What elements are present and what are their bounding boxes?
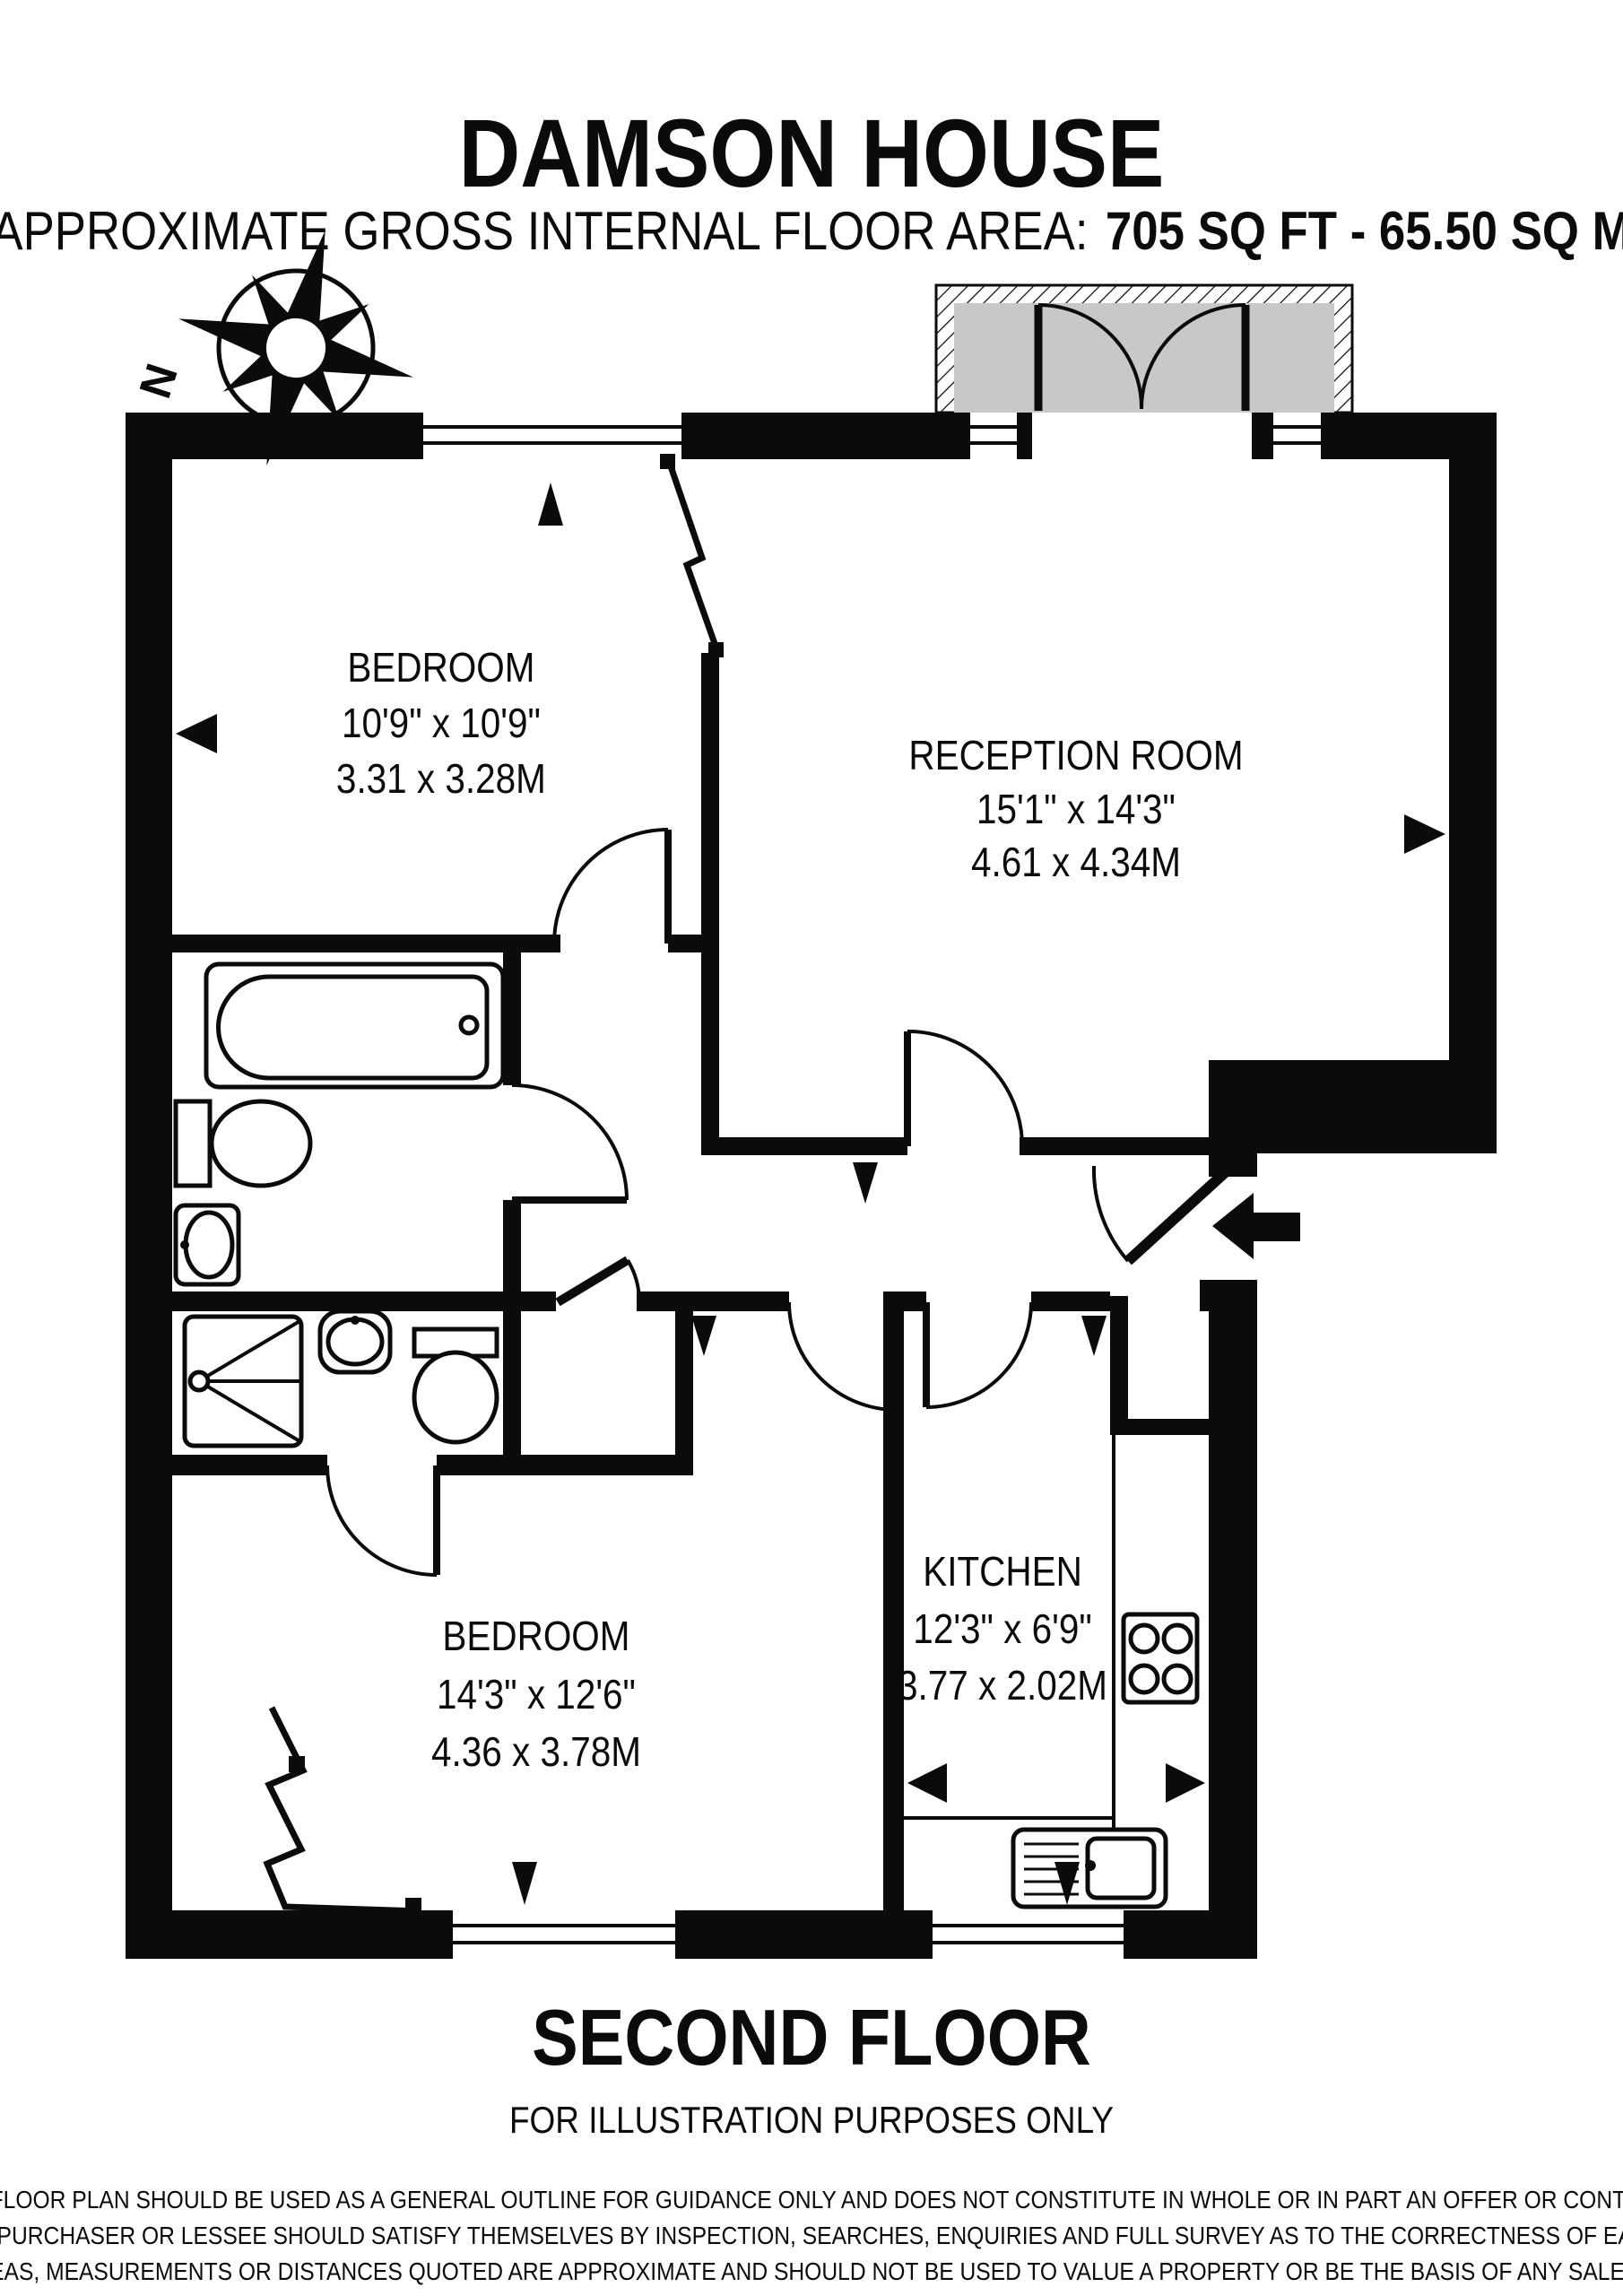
shower-toilet-icon (414, 1329, 497, 1442)
window-balcony-right (1273, 413, 1321, 459)
wall-shower-bottom (126, 1455, 327, 1475)
area-value: 705 SQ FT - 65.50 SQ M (1106, 201, 1623, 261)
window-balcony-left (970, 413, 1017, 459)
floor-label: SECOND FLOOR (532, 1993, 1091, 2082)
hob-icon (1124, 1614, 1197, 1702)
wall-shower-right (503, 1311, 521, 1475)
wall-corridor-d (1031, 1291, 1110, 1311)
shower-basin-icon (320, 1311, 390, 1372)
balcony-deck (954, 303, 1334, 413)
bedroom2-metric: 4.36 x 3.78M (431, 1730, 641, 1776)
window-kitchen-bottom (933, 1910, 1124, 1959)
bedroom1-imperial: 10'9" x 10'9" (342, 701, 541, 747)
disclaimer-line-3: ANY AREAS, MEASUREMENTS OR DISTANCES QUO… (0, 2257, 1623, 2286)
wall-right-upper (1449, 413, 1497, 1062)
toilet-icon (176, 1101, 310, 1186)
reception-name: RECEPTION ROOM (908, 734, 1243, 779)
wall-corridor-a (126, 1291, 556, 1311)
disclaimer-line-2: ANY INTENDING PURCHASER OR LESSEE SHOULD… (0, 2222, 1623, 2250)
room-label-bedroom2: BEDROOM 14'3" x 12'6" 4.36 x 3.78M (431, 1614, 641, 1776)
wall-left (126, 413, 172, 1959)
room-label-bedroom1: BEDROOM 10'9" x 10'9" 3.31 x 3.28M (336, 646, 546, 803)
illustration-note: FOR ILLUSTRATION PURPOSES ONLY (509, 2100, 1114, 2142)
bathtub-icon (206, 964, 503, 1087)
area-label: APPROXIMATE GROSS INTERNAL FLOOR AREA: (0, 201, 1089, 261)
wall-bathroom-right-b (503, 1200, 521, 1291)
reception-metric: 4.61 x 4.34M (971, 840, 1181, 886)
wall-reception-bottom-left (719, 1137, 907, 1155)
basin-icon (176, 1205, 239, 1284)
wall-entrance-header (1209, 1060, 1497, 1153)
floorplan-page: N DAMSON HOUSE APPROXIMATE GROSS INTERNA… (0, 0, 1623, 2296)
bedroom1-name: BEDROOM (347, 646, 534, 691)
shower-icon (185, 1317, 301, 1446)
wall-bed1-bottom-right (668, 935, 719, 952)
balcony-door-opening (1032, 413, 1252, 459)
bedroom2-name: BEDROOM (442, 1614, 629, 1660)
area-line: APPROXIMATE GROSS INTERNAL FLOOR AREA:70… (0, 201, 1623, 261)
wall-closet-right (675, 1311, 693, 1475)
bedroom1-metric: 3.31 x 3.28M (336, 757, 546, 803)
wall-cupboard-bottom (1110, 1419, 1218, 1435)
kitchen-metric: 3.77 x 2.02M (898, 1664, 1107, 1709)
window-bedroom1-top (423, 413, 681, 459)
wall-corridor-b (637, 1291, 789, 1311)
bedroom2-imperial: 14'3" x 12'6" (437, 1673, 636, 1718)
page-title: DAMSON HOUSE (459, 99, 1165, 207)
wall-entrance-hinge-stub (1209, 1153, 1257, 1177)
wall-bed1-reception-divider (701, 653, 719, 1155)
wall-bathroom-right-a (503, 952, 521, 1085)
wall-closet-bottom (437, 1455, 693, 1475)
wall-cupboard-left (1110, 1296, 1128, 1435)
reception-imperial: 15'1" x 14'3" (976, 787, 1176, 833)
kitchen-imperial: 12'3" x 6'9" (913, 1607, 1091, 1653)
wall-bed1-bottom-left (126, 935, 560, 952)
wall-entrance-jamb (1200, 1280, 1218, 1311)
kitchen-name: KITCHEN (923, 1550, 1082, 1596)
wall-reception-bottom-right (1020, 1137, 1209, 1155)
floor-plan-svg: N DAMSON HOUSE APPROXIMATE GROSS INTERNA… (0, 0, 1623, 2296)
kitchen-sink-icon (1013, 1830, 1166, 1907)
wall-kitchen-right (1209, 1280, 1257, 1959)
disclaimer-line-1: THIS FLOOR PLAN SHOULD BE USED AS A GENE… (0, 2186, 1623, 2214)
room-label-kitchen: KITCHEN 12'3" x 6'9" 3.77 x 2.02M (898, 1550, 1107, 1709)
window-bedroom2-bottom (453, 1910, 675, 1959)
